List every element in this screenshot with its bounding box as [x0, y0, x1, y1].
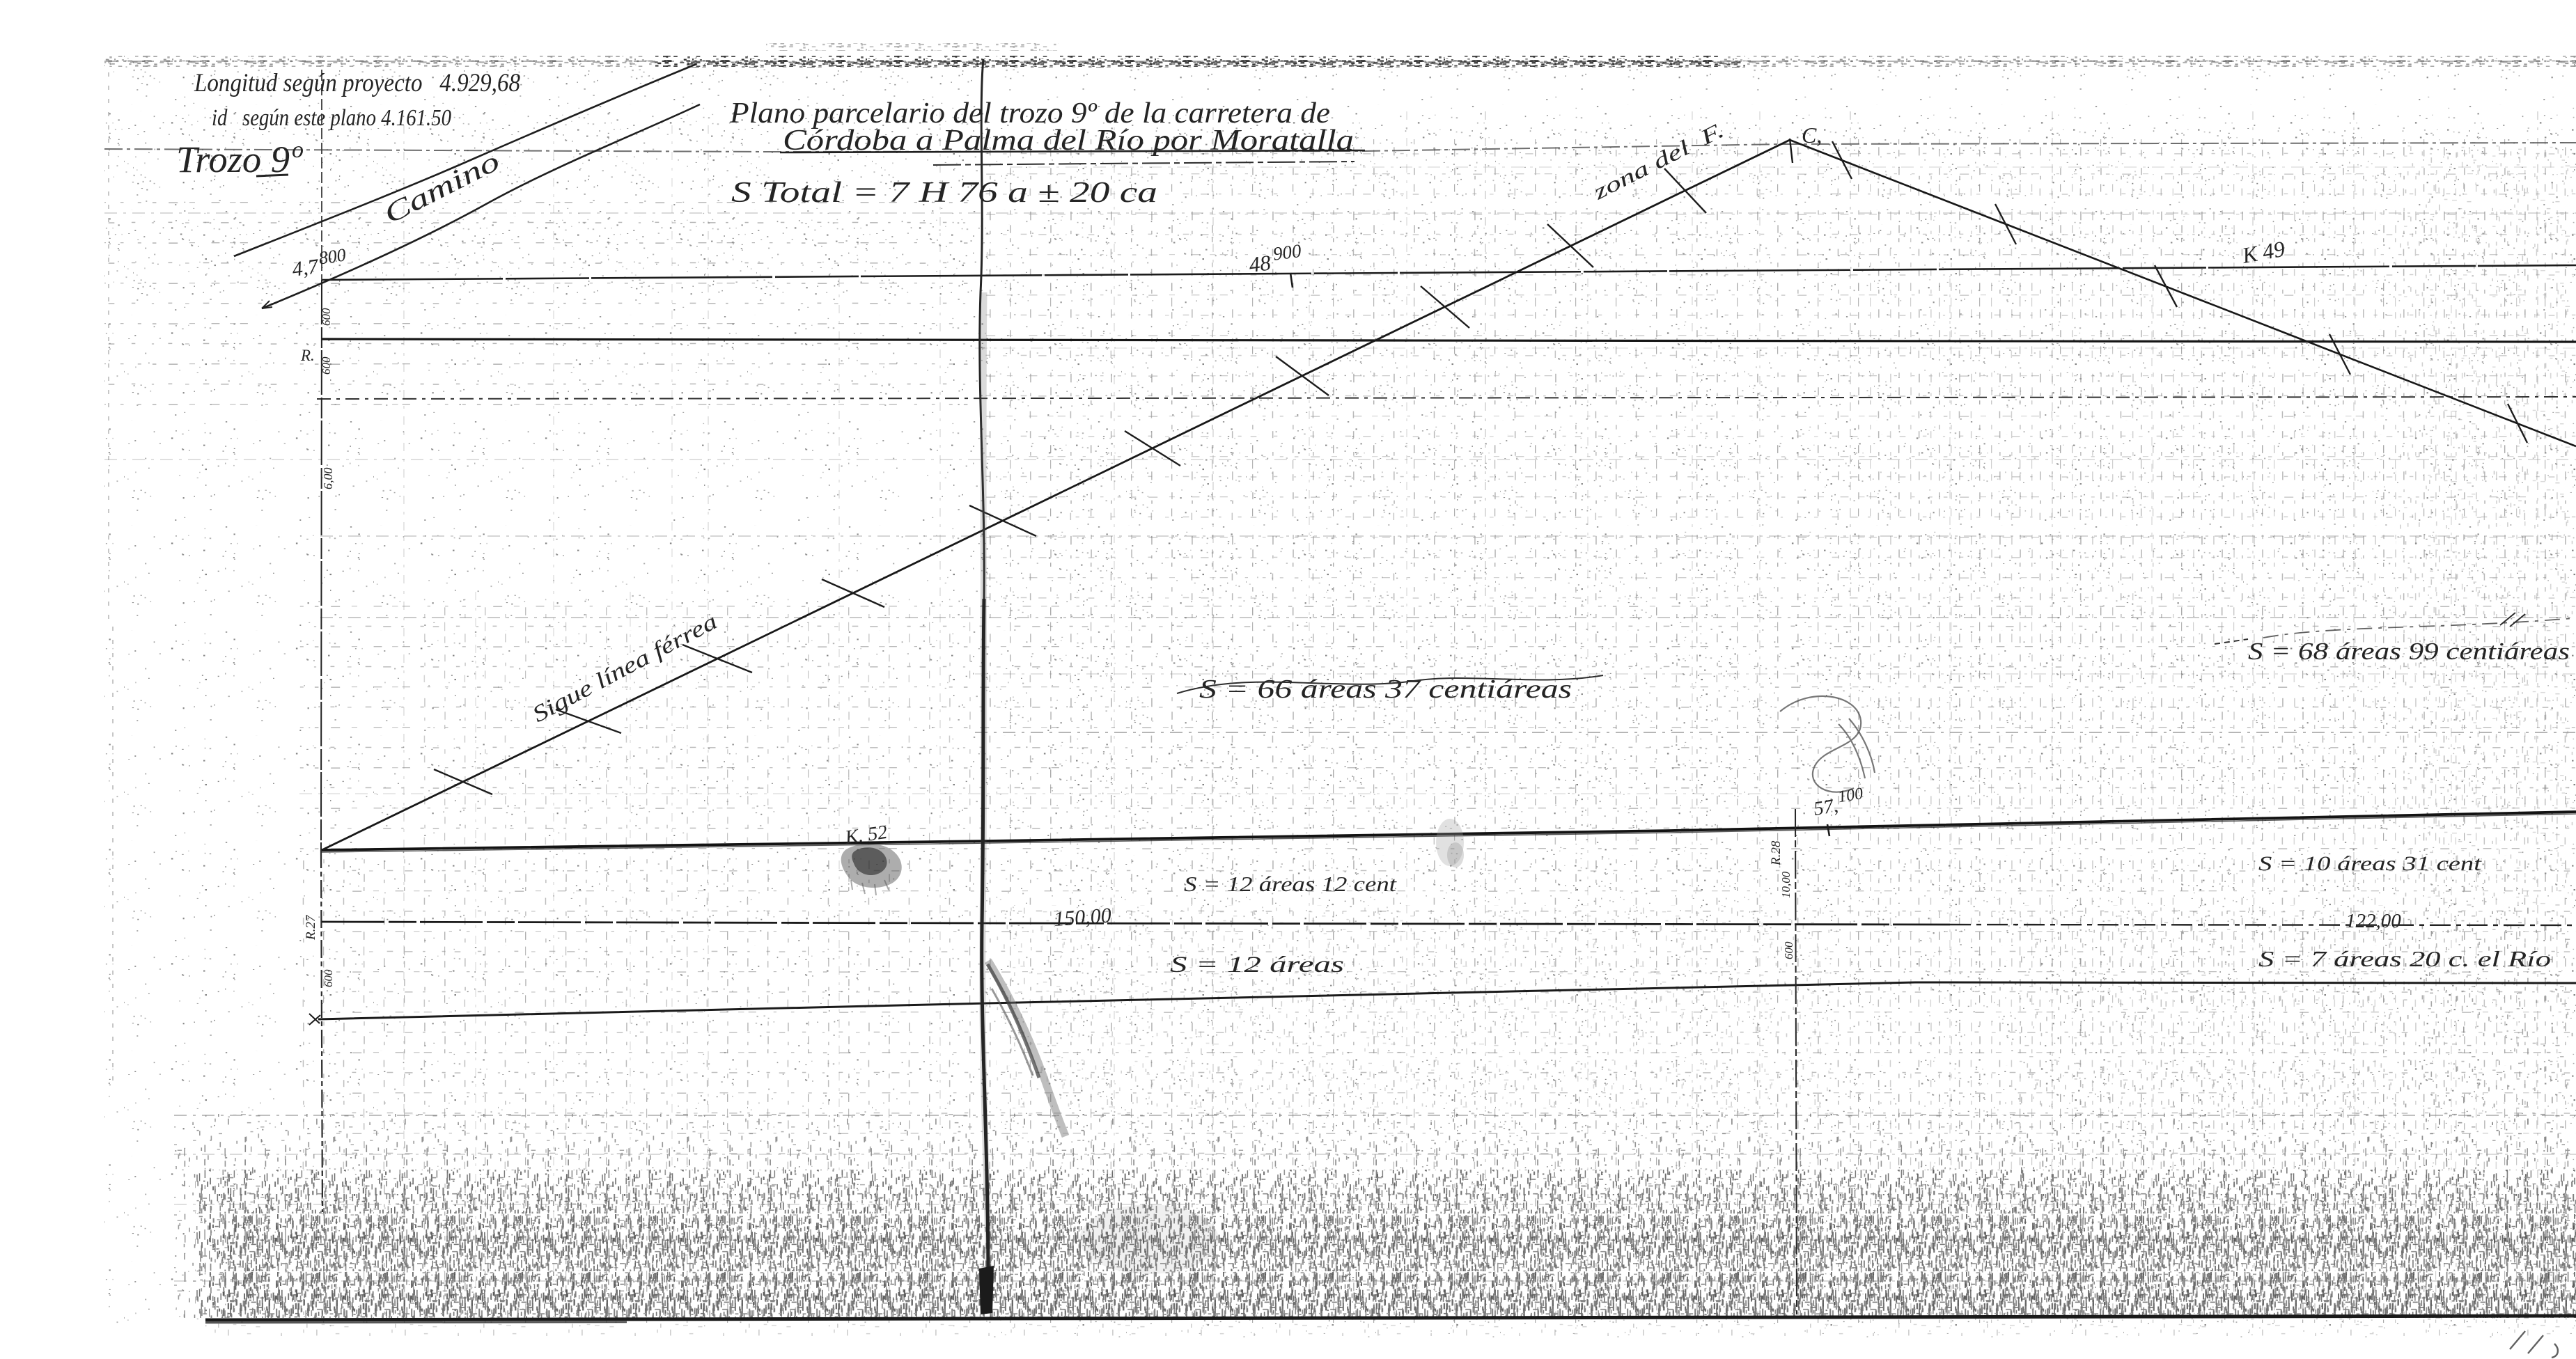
svg-text:S = 7 áreas 20 c. el Río: S = 7 áreas 20 c. el Río	[2258, 946, 2551, 971]
svg-text:S = 10 áreas 31 cent: S = 10 áreas 31 cent	[2258, 852, 2482, 875]
svg-text:4,7: 4,7	[290, 255, 321, 281]
svg-text:122,00: 122,00	[2345, 910, 2401, 932]
svg-text:600: 600	[322, 969, 335, 987]
svg-text:900: 900	[1272, 240, 1302, 265]
svg-text:o: o	[292, 137, 304, 163]
svg-text:R.27: R.27	[304, 914, 318, 941]
svg-text:800: 800	[318, 244, 348, 268]
svg-text:100: 100	[1836, 785, 1864, 806]
svg-text:S Total = 7 H 76 a ± 20 ca: S Total = 7 H 76 a ± 20 ca	[731, 177, 1157, 209]
svg-text:Trozo 9: Trozo 9	[176, 139, 290, 180]
svg-text:600: 600	[320, 308, 333, 326]
svg-text:48: 48	[1248, 250, 1273, 277]
svg-text:Córdoba a Palma del Río por Mo: Córdoba a Palma del Río por Moratalla	[783, 125, 1354, 157]
svg-text:id según este plano 4.161.50: id según este plano 4.161.50	[212, 105, 451, 131]
svg-text:R.28: R.28	[1769, 840, 1783, 866]
svg-text:S = 12 áreas 12 cent: S = 12 áreas 12 cent	[1184, 872, 1398, 896]
svg-text:C,: C,	[1802, 123, 1822, 148]
svg-text:R.: R.	[300, 347, 315, 364]
svg-text:6,00: 6,00	[321, 468, 335, 490]
svg-text:S = 12 áreas: S = 12 áreas	[1170, 952, 1344, 977]
svg-text:Longitud según proyecto 4.92: Longitud según proyecto 4.929,68	[194, 69, 520, 97]
svg-text:600: 600	[1782, 941, 1795, 959]
svg-text:S = 68 áreas 99 centiáreas: S = 68 áreas 99 centiáreas	[2248, 638, 2570, 665]
svg-text:150,00: 150,00	[1053, 904, 1112, 931]
svg-text:57,: 57,	[1812, 795, 1839, 820]
svg-text:600: 600	[320, 356, 333, 375]
svg-text:10,00: 10,00	[1779, 871, 1793, 898]
